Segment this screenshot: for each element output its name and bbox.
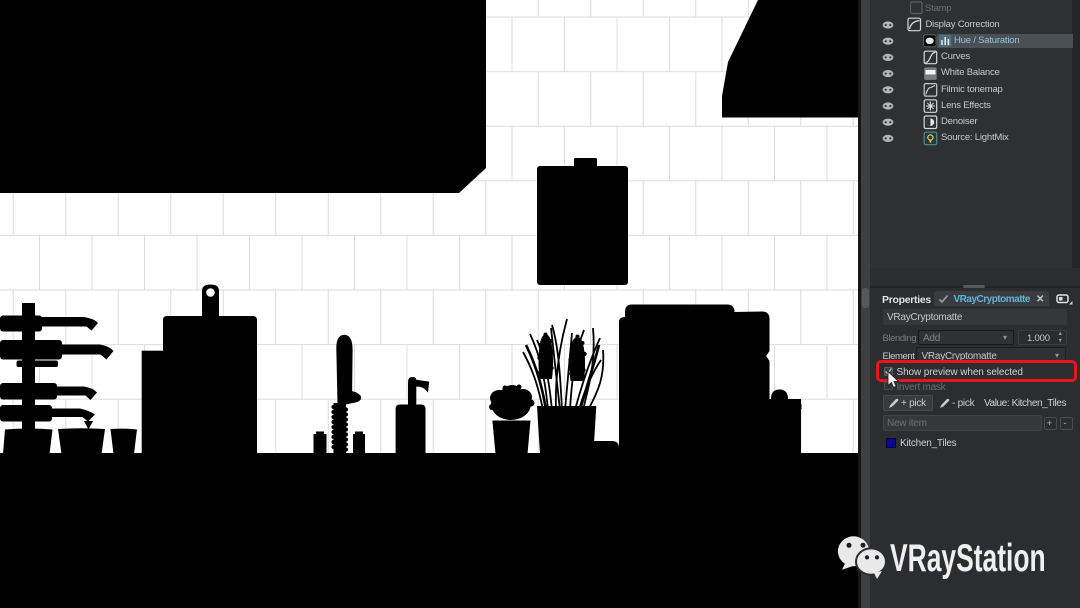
svg-text:VRayStation: VRayStation [890, 537, 1046, 580]
